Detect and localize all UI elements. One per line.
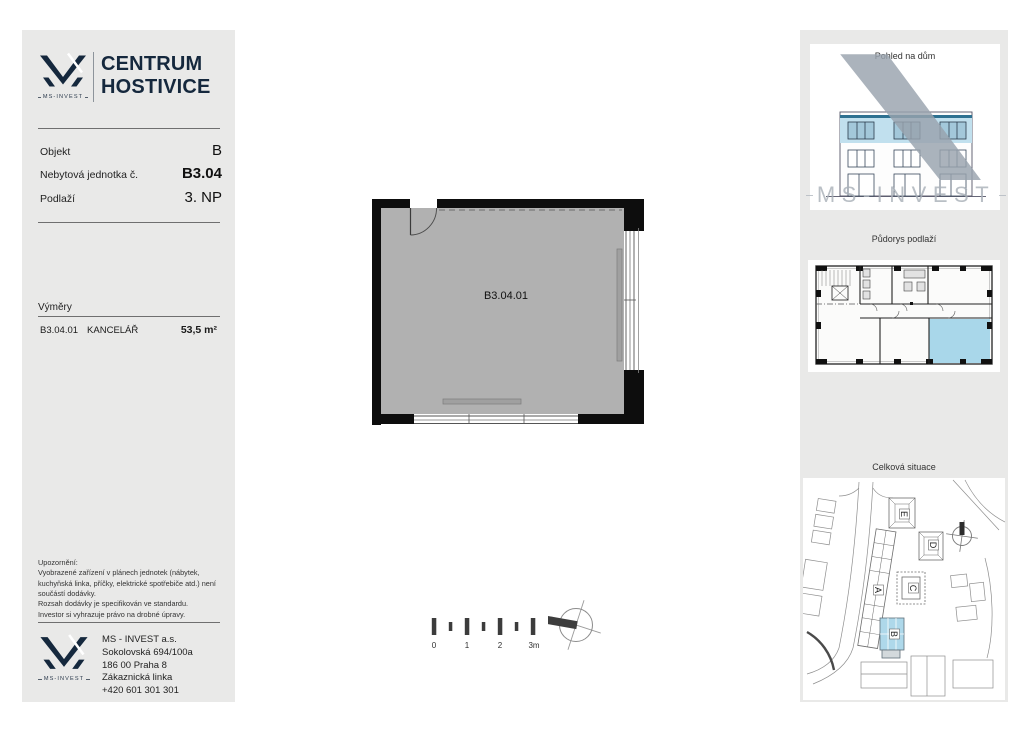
brochure-page: MS-INVEST CENTRUM HOSTIVICE Objekt B Neb… xyxy=(0,0,1024,731)
logo-divider xyxy=(93,52,94,102)
siteplan-title: Celková situace xyxy=(800,462,1008,472)
unit-floor-plan: B3.04.01 xyxy=(366,192,658,436)
door-opening xyxy=(410,199,437,208)
floorplan-title: Půdorys podlaží xyxy=(800,234,1008,244)
notice-paragraph: Vyobrazené zařízení v plánech jednotek (… xyxy=(38,568,219,599)
notice-block: Upozornění: Vyobrazené zařízení v plánec… xyxy=(38,558,219,620)
logo-rule-left xyxy=(38,679,42,680)
scale-major-tick xyxy=(498,618,503,635)
left-info-panel: MS-INVEST CENTRUM HOSTIVICE Objekt B Neb… xyxy=(22,30,235,702)
scale-minor-tick xyxy=(482,622,486,631)
window xyxy=(848,150,874,167)
window xyxy=(848,122,874,139)
scale-label-3m: 3m xyxy=(528,641,539,650)
window xyxy=(940,122,966,139)
logo-brand-text: MS-INVEST xyxy=(44,676,84,682)
scale-label-2: 2 xyxy=(498,641,503,650)
company-address: MS - INVEST a.s. Sokolovská 694/100a 186… xyxy=(102,634,193,698)
areas-heading: Výměry xyxy=(38,302,72,313)
areas-underline xyxy=(38,316,220,317)
floorplan-box xyxy=(808,260,1000,372)
project-title-line1: CENTRUM xyxy=(101,53,211,76)
logo-rule-right xyxy=(86,679,90,680)
info-label: Nebytová jednotka č. xyxy=(40,169,138,181)
window-bottom-opening xyxy=(414,414,578,424)
info-value: B3.04 xyxy=(182,165,222,182)
info-label: Objekt xyxy=(40,146,70,158)
siteplan-box: A B C D E xyxy=(803,478,1005,700)
room-area xyxy=(377,204,633,416)
footer-logo: MS-INVEST xyxy=(38,634,90,682)
notice-paragraph: Rozsah dodávky je specifikován ve standa… xyxy=(38,599,219,609)
info-value: B xyxy=(212,142,222,159)
window xyxy=(894,150,920,167)
room-label: B3.04.01 xyxy=(484,290,528,302)
divider xyxy=(38,222,220,223)
watermark-rule-right xyxy=(999,195,1006,196)
info-row-objekt: Objekt B xyxy=(40,142,222,159)
site-label-E: E xyxy=(899,511,909,517)
address-line: Zákaznická linka xyxy=(102,672,193,685)
site-label-D: D xyxy=(928,542,938,549)
info-row-jednotka: Nebytová jednotka č. B3.04 xyxy=(40,165,222,182)
logo-brand-line: MS-INVEST xyxy=(38,94,88,100)
logo-rule-right xyxy=(85,97,88,98)
area-value: 53,5 m² xyxy=(181,324,217,336)
wall-bottom-right xyxy=(578,414,644,424)
scale-major-tick xyxy=(531,618,536,635)
project-title: CENTRUM HOSTIVICE xyxy=(101,53,211,100)
scale-minor-tick xyxy=(515,622,519,631)
window xyxy=(940,150,966,167)
info-label: Podlaží xyxy=(40,193,75,205)
wall-bottom-left xyxy=(372,414,414,424)
notice-heading: Upozornění: xyxy=(38,558,219,568)
footer-brand-line: MS-INVEST xyxy=(38,676,90,682)
radiator-right xyxy=(617,249,622,361)
column xyxy=(910,302,913,305)
door-window xyxy=(940,174,966,196)
company-logo: MS-INVEST xyxy=(38,52,88,100)
scale-major-tick xyxy=(432,618,437,635)
radiator-bottom xyxy=(443,399,521,404)
elevation-box: Pohled na dům xyxy=(810,44,1000,210)
info-row-podlazi: Podlaží 3. NP xyxy=(40,189,222,206)
project-title-line2: HOSTIVICE xyxy=(101,76,211,99)
address-line: +420 601 301 301 xyxy=(102,685,193,698)
notice-paragraph: Investor si vyhrazuje právo na drobné úp… xyxy=(38,610,219,620)
right-overview-panel: Pohled na dům xyxy=(800,30,1008,702)
wall-corner-top-right xyxy=(624,199,644,231)
scale-bar: 0 1 2 3m xyxy=(425,612,545,660)
divider xyxy=(38,128,220,129)
highlighted-unit xyxy=(929,319,990,363)
address-line: Sokolovská 694/100a xyxy=(102,647,193,660)
floor-overview-drawing xyxy=(808,260,1000,372)
info-value: 3. NP xyxy=(184,189,222,206)
window xyxy=(894,122,920,139)
wall-left xyxy=(372,199,381,425)
site-label-A: A xyxy=(873,587,883,593)
logo-rule-left xyxy=(38,97,41,98)
door-window xyxy=(848,174,874,196)
site-map-drawing: A B C D E xyxy=(803,478,1005,700)
area-code: B3.04.01 xyxy=(40,325,78,336)
elevation-title: Pohled na dům xyxy=(810,51,1000,61)
address-line: MS - INVEST a.s. xyxy=(102,634,193,647)
scale-minor-tick xyxy=(449,622,453,631)
area-name: KANCELÁŘ xyxy=(87,325,138,336)
site-label-B: B xyxy=(889,631,899,637)
logo-brand-text: MS-INVEST xyxy=(43,94,83,100)
ms-invest-m-icon xyxy=(38,634,90,674)
divider xyxy=(38,622,220,623)
scale-label-0: 0 xyxy=(432,641,437,650)
compass-needle xyxy=(548,616,578,629)
building-elevation-drawing xyxy=(810,68,1000,208)
door-window xyxy=(894,174,920,196)
scale-label-1: 1 xyxy=(465,641,470,650)
site-label-C: C xyxy=(908,585,918,592)
area-row: B3.04.01 KANCELÁŘ 53,5 m² xyxy=(40,324,217,336)
scale-major-tick xyxy=(465,618,470,635)
wall-top-left xyxy=(372,199,410,208)
wall-top xyxy=(437,199,624,208)
north-compass xyxy=(548,598,608,654)
highlight-floor-edge xyxy=(840,115,972,118)
address-line: 186 00 Praha 8 xyxy=(102,660,193,673)
ms-invest-m-icon xyxy=(38,52,88,92)
